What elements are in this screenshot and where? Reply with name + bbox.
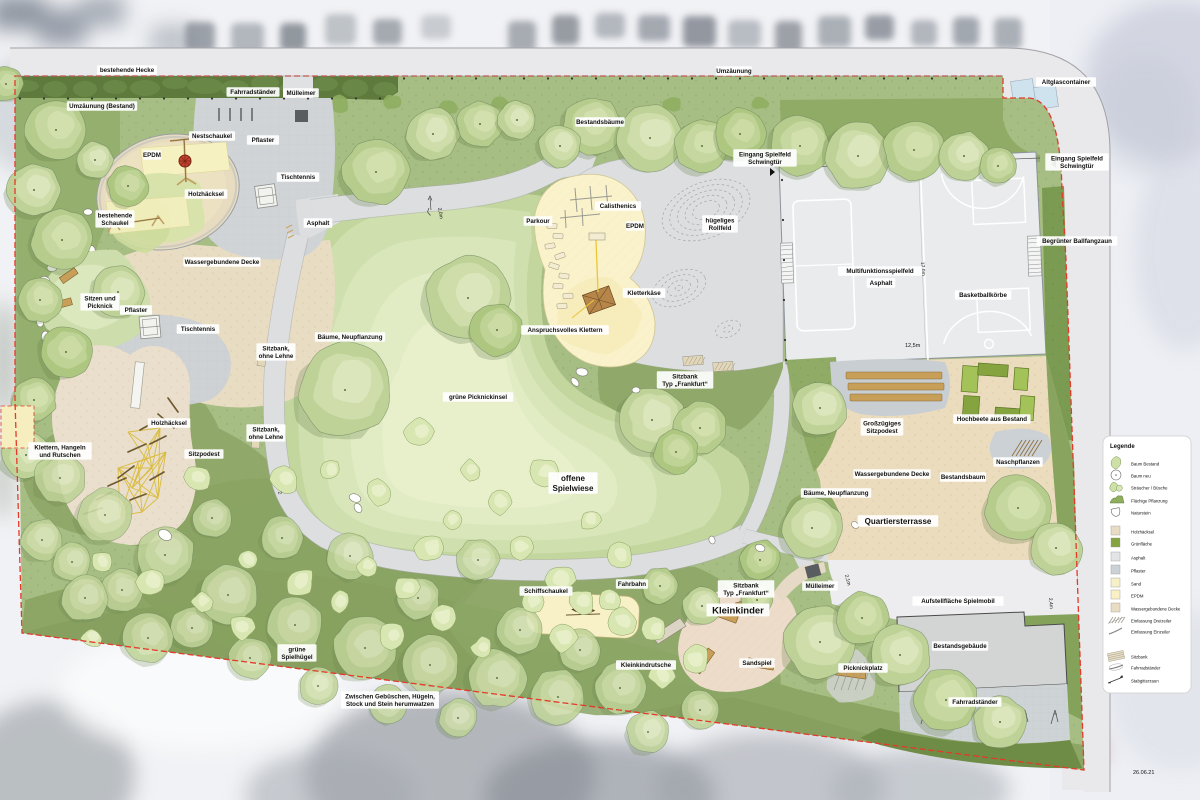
svg-text:Fahrradständer: Fahrradständer [230, 89, 276, 96]
svg-text:Nestschaukel: Nestschaukel [192, 133, 232, 140]
svg-text:Umzäunung (Bestand): Umzäunung (Bestand) [69, 103, 135, 110]
svg-text:Sitzbank: Sitzbank [1131, 655, 1148, 660]
svg-text:offene: offene [561, 474, 586, 483]
svg-text:Legende: Legende [1110, 444, 1135, 450]
svg-text:Kleinkinder: Kleinkinder [712, 605, 764, 616]
svg-text:EPDM: EPDM [1131, 594, 1144, 599]
svg-text:Altglascontainer: Altglascontainer [1042, 79, 1091, 86]
svg-text:Schwingtür: Schwingtür [1060, 163, 1094, 170]
svg-text:Stabgitterzaun: Stabgitterzaun [1131, 679, 1159, 684]
svg-text:Eingang Spielfeld: Eingang Spielfeld [739, 151, 791, 158]
svg-text:Baum Bestand: Baum Bestand [1131, 462, 1160, 467]
svg-text:Umzäunung: Umzäunung [716, 68, 752, 75]
svg-text:Begrünter Ballfangzaun: Begrünter Ballfangzaun [1042, 238, 1112, 245]
svg-text:Fahrradständer: Fahrradständer [952, 699, 998, 706]
svg-text:Sitzbank: Sitzbank [672, 373, 698, 380]
svg-text:Sträucher / Büsche: Sträucher / Büsche [1131, 486, 1168, 491]
svg-text:Sitzpodest: Sitzpodest [866, 428, 897, 435]
svg-text:Kleinkindrutsche: Kleinkindrutsche [621, 662, 672, 669]
svg-text:grüne: grüne [288, 646, 306, 653]
svg-text:und Rutschen: und Rutschen [39, 452, 80, 459]
svg-text:ohne Lehne: ohne Lehne [259, 353, 294, 360]
svg-text:Bestandsgebäude: Bestandsgebäude [933, 643, 987, 650]
svg-text:Sitzbank: Sitzbank [733, 582, 759, 589]
svg-text:Fahrradständer: Fahrradständer [1131, 666, 1161, 671]
svg-text:Asphalt: Asphalt [307, 220, 330, 227]
svg-text:hügeliges: hügeliges [706, 217, 735, 224]
svg-text:grüne Picknickinsel: grüne Picknickinsel [449, 394, 507, 401]
svg-text:Pflaster: Pflaster [125, 307, 148, 314]
svg-text:Schwingtür: Schwingtür [748, 159, 782, 166]
svg-text:Naturstein: Naturstein [1131, 511, 1151, 516]
svg-text:Typ „Frankfurt“: Typ „Frankfurt“ [723, 590, 769, 597]
svg-text:Kletterkäse: Kletterkäse [627, 290, 661, 297]
svg-text:Parkour: Parkour [526, 218, 550, 225]
svg-text:bestehende: bestehende [98, 212, 133, 219]
svg-text:Bäume, Neupflanzung: Bäume, Neupflanzung [804, 490, 869, 497]
svg-text:Zwischen Gebüschen, Hügeln,: Zwischen Gebüschen, Hügeln, [345, 693, 435, 700]
svg-text:Spielwiese: Spielwiese [553, 484, 594, 493]
svg-text:Sitzbank,: Sitzbank, [252, 426, 279, 433]
svg-text:Stock und Stein herumwatzen: Stock und Stein herumwatzen [346, 701, 434, 708]
svg-text:Bestandsbäume: Bestandsbäume [576, 119, 624, 126]
svg-text:bestehende Hecke: bestehende Hecke [100, 67, 155, 74]
svg-text:Spielhügel: Spielhügel [281, 654, 313, 661]
svg-text:Wassergebundene Decke: Wassergebundene Decke [185, 259, 260, 266]
svg-text:Schiffschaukel: Schiffschaukel [524, 588, 568, 595]
svg-text:Baum neu: Baum neu [1131, 474, 1151, 479]
svg-text:Pflaster: Pflaster [252, 137, 275, 144]
svg-text:Aufstellfläche Spielmobil: Aufstellfläche Spielmobil [921, 598, 995, 605]
svg-text:Eingang Spielfeld: Eingang Spielfeld [1051, 155, 1103, 162]
svg-text:Flächige Pflanzung: Flächige Pflanzung [1131, 499, 1168, 504]
svg-text:12,5m: 12,5m [905, 343, 921, 349]
svg-text:Fahrbahn: Fahrbahn [618, 581, 646, 588]
svg-text:Einfassung Dreizeiler: Einfassung Dreizeiler [1131, 619, 1172, 624]
svg-text:Bestandsbaum: Bestandsbaum [941, 474, 986, 481]
svg-text:2,4m: 2,4m [1047, 598, 1054, 610]
svg-text:Wassergebundene Decke: Wassergebundene Decke [1131, 607, 1181, 612]
svg-text:Großzügiges: Großzügiges [863, 420, 901, 427]
svg-text:Mülleimer: Mülleimer [287, 90, 316, 97]
svg-text:Pflaster: Pflaster [1131, 569, 1146, 574]
svg-text:Typ „Frankfurt“: Typ „Frankfurt“ [662, 381, 708, 388]
svg-text:EPDM: EPDM [626, 223, 644, 230]
svg-text:Hochbeete aus Bestand: Hochbeete aus Bestand [957, 416, 1027, 423]
svg-text:Sand: Sand [1131, 582, 1142, 587]
svg-text:Holzhäcksel: Holzhäcksel [1131, 530, 1154, 535]
svg-text:Sitzbank,: Sitzbank, [262, 345, 289, 352]
svg-text:Holzhäcksel: Holzhäcksel [188, 191, 224, 198]
svg-text:Tischtennis: Tischtennis [181, 326, 216, 333]
svg-text:Naschpflanzen: Naschpflanzen [996, 459, 1040, 466]
svg-text:Rollfeld: Rollfeld [709, 225, 732, 232]
svg-text:Grünfläche: Grünfläche [1131, 542, 1153, 547]
svg-text:Anspruchsvolles Klettern: Anspruchsvolles Klettern [528, 327, 603, 334]
svg-text:Klettern, Hangeln: Klettern, Hangeln [34, 444, 85, 451]
svg-text:Tischtennis: Tischtennis [281, 174, 316, 181]
svg-text:Picknick: Picknick [87, 303, 113, 310]
svg-text:Asphalt: Asphalt [870, 280, 893, 287]
svg-text:ohne Lehne: ohne Lehne [249, 434, 284, 441]
svg-text:Calisthenics: Calisthenics [600, 203, 637, 210]
svg-text:Asphalt: Asphalt [1131, 556, 1146, 561]
svg-text:Picknickplatz: Picknickplatz [843, 665, 882, 672]
svg-text:Bäume, Neupflanzung: Bäume, Neupflanzung [318, 334, 383, 341]
svg-text:Sitzpodest: Sitzpodest [188, 451, 219, 458]
svg-text:Quartiersterrasse: Quartiersterrasse [865, 517, 932, 526]
svg-text:Basketballkörbe: Basketballkörbe [959, 292, 1007, 299]
svg-text:Multifunktionsspielfeld: Multifunktionsspielfeld [846, 268, 914, 275]
svg-text:Einfassung Einzeiler: Einfassung Einzeiler [1131, 630, 1171, 635]
svg-text:Holzhäcksel: Holzhäcksel [151, 420, 187, 427]
svg-text:Mülleimer: Mülleimer [806, 583, 835, 590]
svg-text:Sitzen und: Sitzen und [84, 295, 115, 302]
svg-text:Wassergebundene Decke: Wassergebundene Decke [855, 471, 930, 478]
svg-text:Schaukel: Schaukel [101, 220, 128, 227]
svg-text:EPDM: EPDM [143, 152, 161, 159]
svg-text:26.06.21: 26.06.21 [1133, 770, 1154, 776]
svg-text:Sandspiel: Sandspiel [742, 660, 772, 667]
